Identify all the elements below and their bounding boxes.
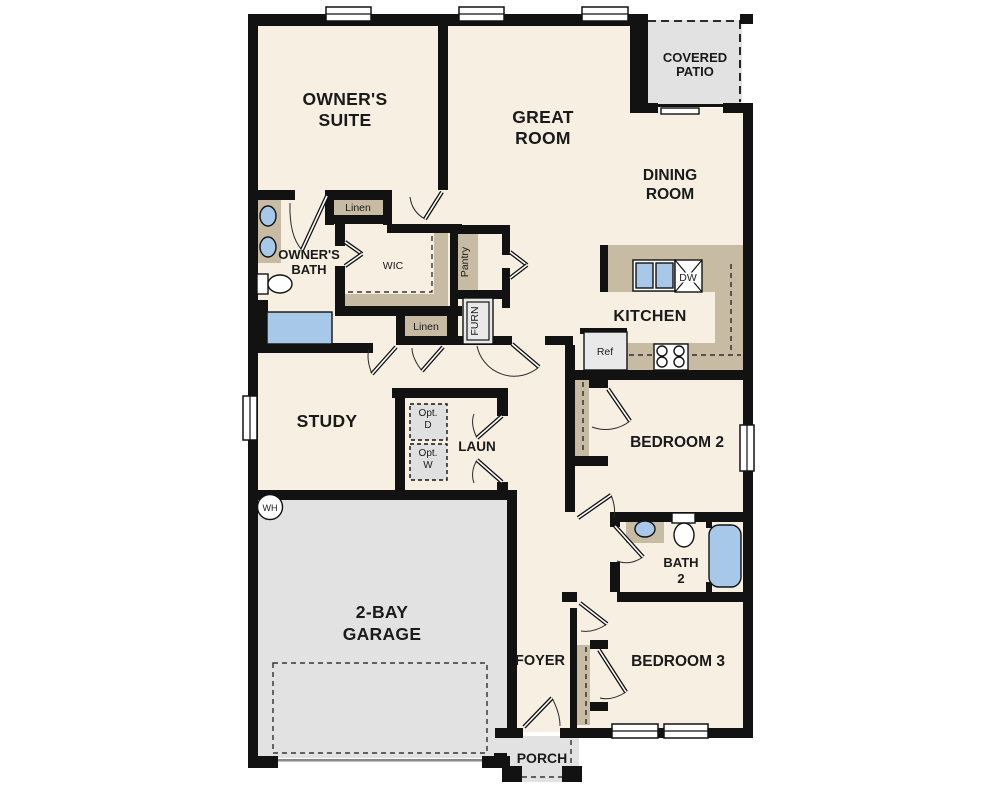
room-label-study: STUDY [297, 411, 358, 431]
fixture-label-refrigerator: Ref [597, 346, 613, 358]
wall-segment [589, 380, 608, 388]
kitchen-sink-basin-1 [636, 263, 653, 288]
room-label-great-room-1: GREAT [512, 107, 573, 127]
wall-segment [335, 266, 345, 311]
room-label-dining-room-1: DINING [643, 167, 697, 184]
room-label-covered-patio-2: PATIO [676, 64, 714, 79]
slider-panel [661, 108, 699, 114]
wall-segment [570, 608, 577, 728]
wall-segment [565, 456, 575, 512]
fixture-label-dishwasher: DW [679, 272, 697, 284]
wall-segment [325, 215, 392, 224]
wall-segment [565, 370, 743, 380]
fixture-label-opt-dryer-2: D [424, 420, 431, 431]
room-label-kitchen: KITCHEN [613, 308, 686, 325]
window-bedroom3-1 [612, 724, 658, 738]
room-label-covered-patio-1: COVERED [663, 50, 727, 65]
owners-bath-sink-1 [260, 206, 276, 226]
wall-segment [590, 702, 608, 711]
closet-label-linen-top: Linen [345, 202, 371, 214]
bath2-toilet-tank [672, 513, 695, 523]
owners-bath-toilet-tank [257, 274, 268, 294]
owners-bath-sink-2 [260, 237, 276, 257]
owners-bath-tub [267, 312, 332, 344]
wall-segment [392, 388, 508, 398]
wall-segment [450, 225, 458, 299]
window-great-room-2 [582, 7, 628, 21]
wall-segment [438, 26, 448, 190]
floor-plan-page: OWNER'S SUITE GREAT ROOM COVERED PATIO D… [0, 0, 1000, 800]
wall-segment [560, 728, 600, 738]
porch-post-right [562, 766, 582, 782]
porch-post-left [502, 766, 522, 782]
window-great-room-1 [459, 7, 504, 21]
garage-door-threshold [278, 759, 482, 762]
slider-track [656, 104, 724, 107]
wall-segment [743, 103, 753, 738]
wall-segment [497, 482, 508, 500]
wall-segment [337, 343, 373, 353]
bedroom2-closet-shelf [575, 380, 589, 456]
wall-segment [248, 190, 295, 200]
wall-segment [572, 456, 608, 466]
wall-segment [507, 500, 517, 738]
wall-segment [630, 103, 658, 113]
bedroom3-closet-shelf [577, 645, 590, 725]
wall-segment [248, 14, 258, 768]
kitchen-island-end-wall [600, 245, 608, 292]
wall-segment [706, 512, 712, 528]
wic-shelf-right [434, 233, 448, 294]
room-label-owners-suite-2: SUITE [318, 110, 371, 130]
wic-shelf-bottom [345, 294, 448, 306]
window-study [243, 396, 257, 440]
fixture-label-opt-washer-2: W [423, 460, 433, 471]
range [654, 344, 688, 370]
wall-segment [395, 388, 405, 500]
wall-segment [335, 306, 462, 316]
kitchen-counter-right [715, 292, 743, 344]
wall-segment [590, 640, 608, 649]
room-label-owners-bath-2: BATH [291, 262, 326, 277]
bath2-tub [709, 525, 741, 587]
fixture-label-opt-washer-1: Opt. [419, 448, 438, 459]
wall-segment [502, 290, 510, 308]
wall-segment [248, 490, 517, 500]
closet-label-wic: WIC [383, 260, 404, 272]
room-label-owners-bath-1: OWNER'S [278, 247, 340, 262]
window-bedroom3-2 [664, 724, 708, 738]
wall-segment [562, 592, 577, 602]
wall-segment [396, 336, 456, 345]
wall-segment [723, 103, 753, 113]
burner [657, 346, 667, 356]
room-label-bedroom2: BEDROOM 2 [630, 434, 724, 451]
wall-segment [335, 224, 345, 246]
wall-segment [617, 592, 743, 602]
room-label-great-room-2: ROOM [515, 128, 571, 148]
wall-segment [630, 14, 648, 103]
wall-segment [740, 14, 753, 24]
owners-bath-toilet-bowl [268, 275, 292, 293]
wall-segment [565, 345, 575, 370]
window-bedroom2 [740, 425, 754, 471]
room-label-garage-1: 2-BAY [356, 602, 408, 622]
wall-segment [610, 562, 620, 592]
room-label-dining-room-2: ROOM [646, 186, 694, 203]
room-label-garage-2: GARAGE [343, 624, 422, 644]
closet-label-linen-hall: Linen [413, 321, 439, 333]
closet-label-pantry: Pantry [459, 246, 471, 277]
wall-segment [502, 225, 510, 255]
room-label-bath2-1: BATH [663, 555, 698, 570]
window-owners-suite [326, 7, 371, 21]
room-label-bath2-2: 2 [677, 571, 684, 586]
wall-segment [545, 336, 573, 345]
wall-segment [610, 512, 620, 527]
wall-segment [497, 388, 508, 416]
wall-segment [248, 756, 278, 768]
floor-plan: OWNER'S SUITE GREAT ROOM COVERED PATIO D… [0, 0, 1000, 800]
wall-segment [494, 753, 507, 766]
bath2-sink [635, 521, 655, 537]
fixture-label-water-heater: WH [263, 503, 278, 513]
fixture-label-furnace: FURN [469, 306, 481, 335]
wall-segment [325, 190, 392, 200]
room-label-foyer: FOYER [515, 653, 565, 669]
wall-segment [450, 225, 510, 234]
wall-segment [565, 380, 575, 456]
burner [674, 346, 684, 356]
room-label-bedroom3: BEDROOM 3 [631, 653, 725, 670]
burner [657, 357, 667, 367]
kitchen-sink-basin-2 [656, 263, 673, 288]
bath2-toilet-bowl [674, 523, 694, 547]
fixture-label-opt-dryer-1: Opt. [419, 408, 438, 419]
room-label-porch: PORCH [517, 750, 568, 766]
burner [674, 357, 684, 367]
room-label-laundry: LAUN [458, 439, 496, 454]
room-label-owners-suite-1: OWNER'S [302, 89, 387, 109]
